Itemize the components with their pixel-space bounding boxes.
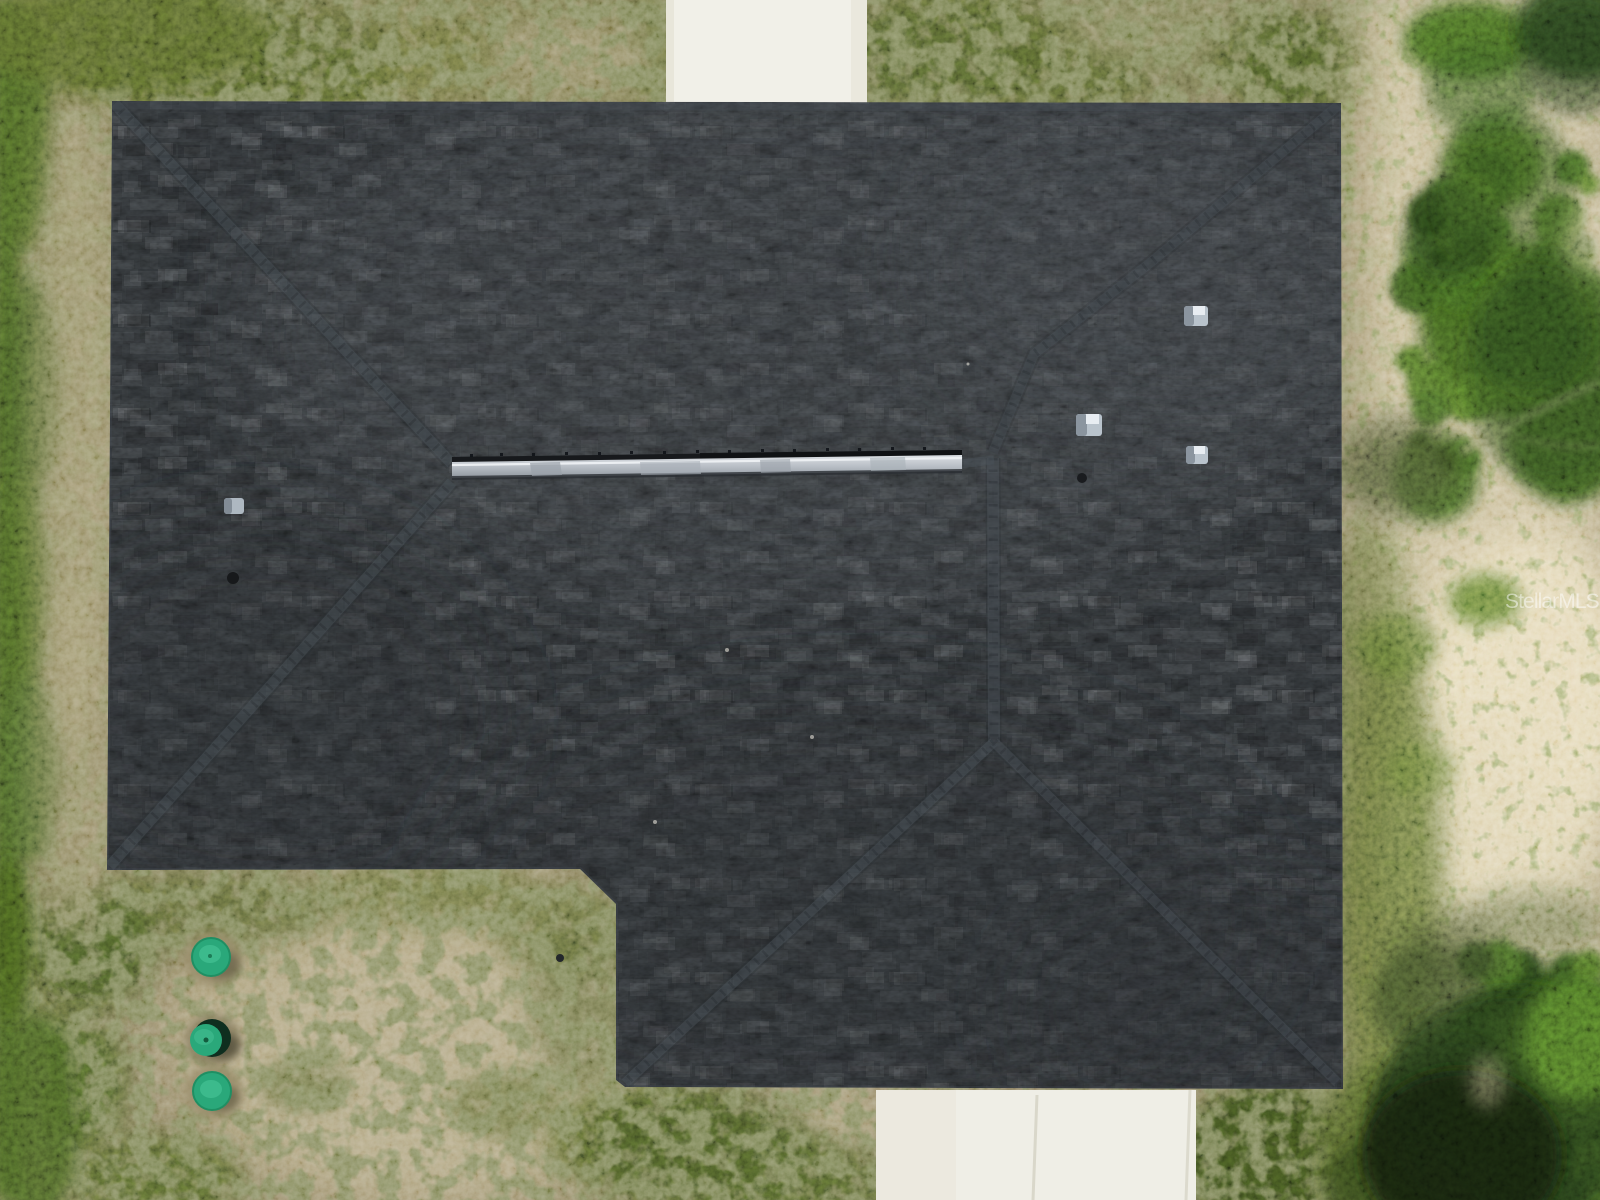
svg-text:StellarMLS: StellarMLS [1505,590,1600,613]
